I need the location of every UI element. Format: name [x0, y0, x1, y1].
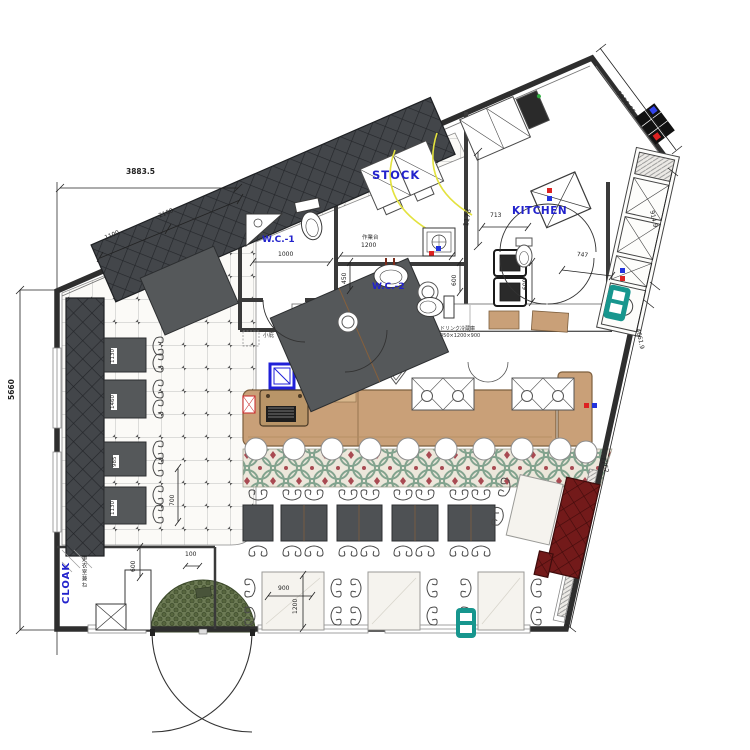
middle-table-row: [243, 490, 495, 556]
table-dim-2: 1460: [111, 394, 117, 410]
corner-panel: [635, 103, 675, 145]
dim-top-width: 3883.5: [126, 168, 155, 176]
drink-fridge-size: 450×1200×900: [440, 334, 480, 339]
entrance-mat: [151, 580, 255, 632]
floor-plan: W.C.-1 STOCK W.C.-2 KITCHEN CLOAK 更衣室兼ね …: [0, 0, 750, 750]
dim-table-gap: 700: [170, 495, 176, 506]
dim-left-height: 5660: [8, 379, 16, 400]
dim-bottom-table-width: 900: [278, 586, 289, 592]
dim-wc1-width: 1000: [278, 252, 293, 258]
room-label-kitchen: KITCHEN: [512, 206, 567, 217]
floor-plan-drawing: [0, 0, 750, 750]
dim-cloak-depth: 600: [131, 561, 137, 572]
table-dim-1: 1130: [111, 348, 117, 364]
room-label-stock: STOCK: [372, 170, 420, 182]
dim-kitchen-depth: 600: [523, 279, 529, 290]
table-dim-3: 985: [113, 456, 119, 469]
room-label-cloak: CLOAK: [62, 562, 72, 604]
dim-counter-depth: 450: [342, 273, 348, 284]
dim-kitchen-width: 713: [490, 213, 501, 219]
canopy-label: 小庇: [263, 334, 274, 340]
bottom-table-row: [245, 572, 541, 630]
room-label-wc2: W.C.-2: [372, 283, 405, 292]
dim-entry-offset: 100: [185, 552, 196, 558]
cloak-fixtures: [62, 550, 151, 630]
room-label-wc1: W.C.-1: [262, 236, 295, 245]
dim-bottom-table-depth: 1200: [293, 599, 299, 614]
dim-workbench-width: 1200: [361, 243, 376, 249]
cloak-note: 更衣室兼ね: [80, 556, 86, 589]
drink-fridge-label: ドリンク冷蔵庫: [440, 327, 475, 332]
table-dim-4: 1130: [111, 500, 117, 516]
workbench-label: 作業台: [362, 236, 379, 242]
dim-basin-depth: 600: [452, 275, 458, 286]
dim-kitchen-pass: 747: [576, 252, 588, 259]
